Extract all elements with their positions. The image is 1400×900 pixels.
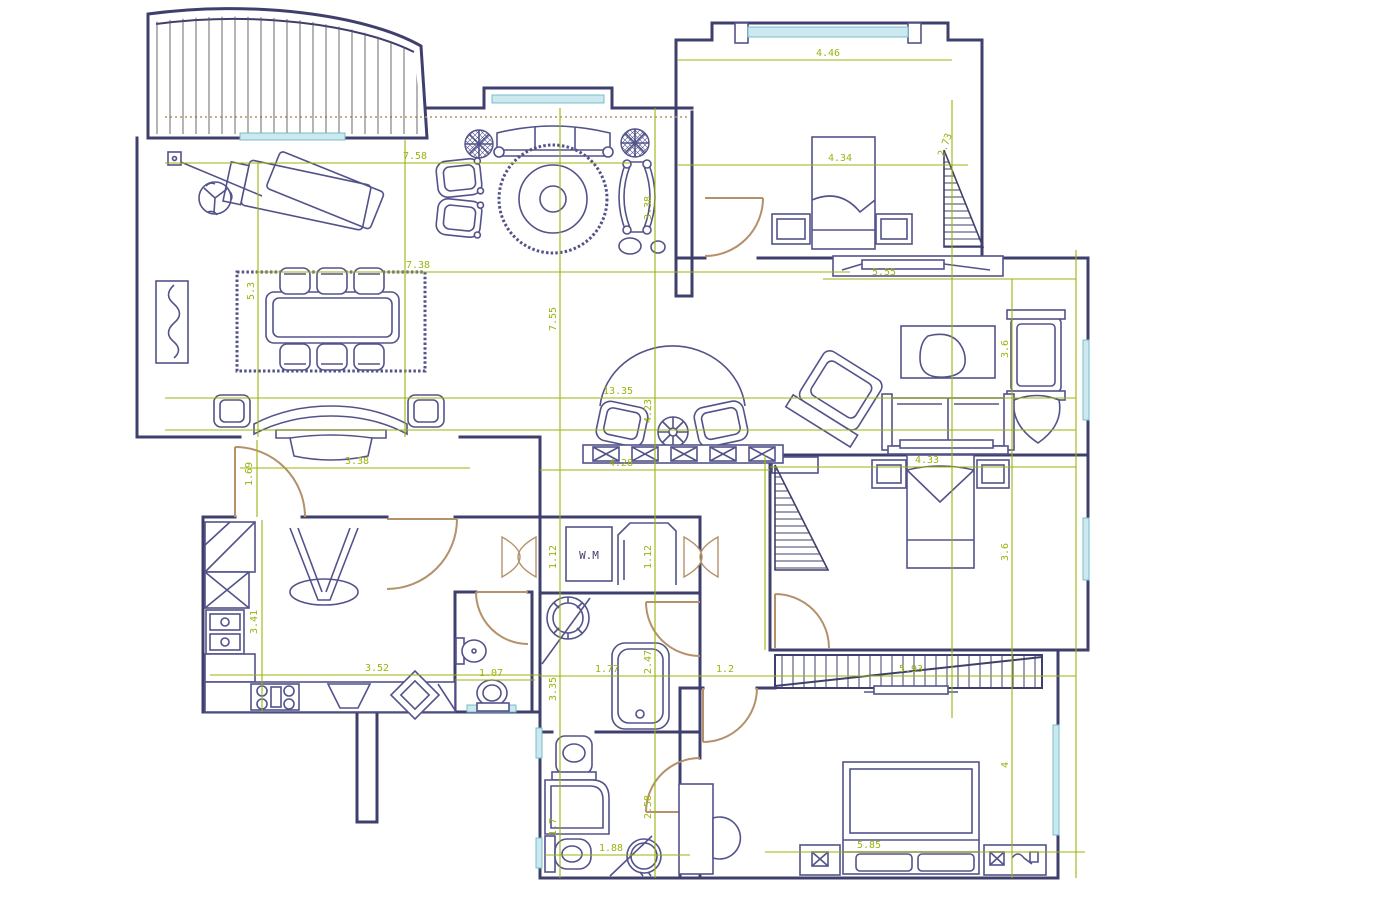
armchair-angled [786,346,889,447]
dim-4-28: 4.28 [609,458,633,469]
dim-3-38-hall: 3.38 [345,456,369,467]
toilet-bath1 [552,736,596,780]
dim-7-38: 7.38 [406,260,430,271]
dim-4: 4 [1000,762,1011,768]
dim-3-41: 3.41 [249,610,260,634]
dim-5-55: 5.55 [872,267,896,278]
washing-machine: W.M [566,527,612,581]
tv-bedroom2 [900,440,993,448]
floorplan-canvas: W.M 7.58 7.38 5.3 4.46 4.34 2. [0,0,1400,900]
bifold-door-left [502,537,536,577]
hall-console-group [214,395,444,460]
dim-3-52: 3.52 [365,663,389,674]
window-living-right [1083,340,1089,420]
dim-4-33: 4.33 [915,455,939,466]
dim-13-35: 13.35 [603,386,633,397]
console-wavy [156,281,188,363]
dim-1-69: 1.69 [244,462,255,486]
dim-3-38-sofa: 3.38 [643,196,654,220]
desk-master [679,784,740,874]
nightstand-master-right [984,845,1046,875]
shield-chair [1014,396,1060,444]
water-heater [542,597,590,664]
bed-master [843,762,979,874]
bed-bedroom2 [907,455,974,568]
wc-basin [456,638,486,664]
door-kitchen [387,519,457,589]
dim-1-77: 1.77 [595,664,619,675]
wardrobe-triangle-bedroom2 [775,465,828,570]
armchair-left-2 [435,198,484,239]
dining-table [266,292,399,343]
washing-machine-label: W.M [579,549,599,562]
dim-3-35: 3.35 [548,677,559,701]
dim-5-85: 5.85 [857,840,881,851]
armchair-left-1 [435,158,484,199]
window-balcony [240,133,345,140]
coffee-table [901,326,995,378]
nightstand-b2-left [872,460,906,488]
kitchen-hood [290,528,358,605]
dim-7-55: 7.55 [548,307,559,331]
toilet-bath2 [545,836,591,872]
dim-1-07: 1.07 [479,668,503,679]
window-bay [492,95,604,103]
door-bedroom2 [775,594,829,648]
dim-5-93: 5.93 [899,664,923,675]
dim-4-46: 4.46 [816,48,840,59]
window-bath1 [536,728,542,758]
dim-7-58: 7.58 [403,151,427,162]
potted-plant-right [621,129,649,157]
dim-5-3: 5.3 [246,282,257,300]
dim-1-12-right: 1.12 [643,545,654,569]
sofa-right-curved [619,160,665,254]
dim-1-88: 1.88 [599,843,623,854]
bathtub [612,643,669,729]
tv-master [864,686,958,694]
door-master [703,688,757,742]
door-bedroom1 [705,198,763,256]
wc-toilet [477,680,509,711]
stove [251,684,299,710]
dim-2-58: 2.58 [643,795,654,819]
dim-4-34: 4.34 [828,153,852,164]
window-master [1053,725,1059,835]
nightstand-b1-right [876,214,912,244]
nightstand-b2-right [977,460,1009,488]
center-seating [594,346,749,449]
basin-bath2 [610,836,661,876]
window-bedroom2 [1083,518,1089,580]
window-bedroom1 [748,27,908,37]
dim-3-6-bedroom2: 3.6 [1000,543,1011,561]
potted-plant-left [465,130,493,158]
round-rug [499,145,607,253]
sofa-top [494,126,613,157]
tv-console-living [833,256,1003,276]
sofa-side-right [1007,310,1065,400]
dim-2-47: 2.47 [643,650,654,674]
window-bath2 [536,838,542,868]
dim-1-2: 1.2 [716,664,734,675]
nightstand-master-left [800,845,840,875]
nightstand-b1-left [772,214,810,244]
floorplan-drawing: W.M 7.58 7.38 5.3 4.46 4.34 2. [0,0,1400,900]
dim-3-6-living: 3.6 [1000,340,1011,358]
dim-1-12-left: 1.12 [548,545,559,569]
dim-4-23: 4.23 [643,399,654,423]
door-wc [476,592,528,644]
dim-1-7: 1.7 [548,818,559,836]
balcony-terrace [154,17,421,134]
